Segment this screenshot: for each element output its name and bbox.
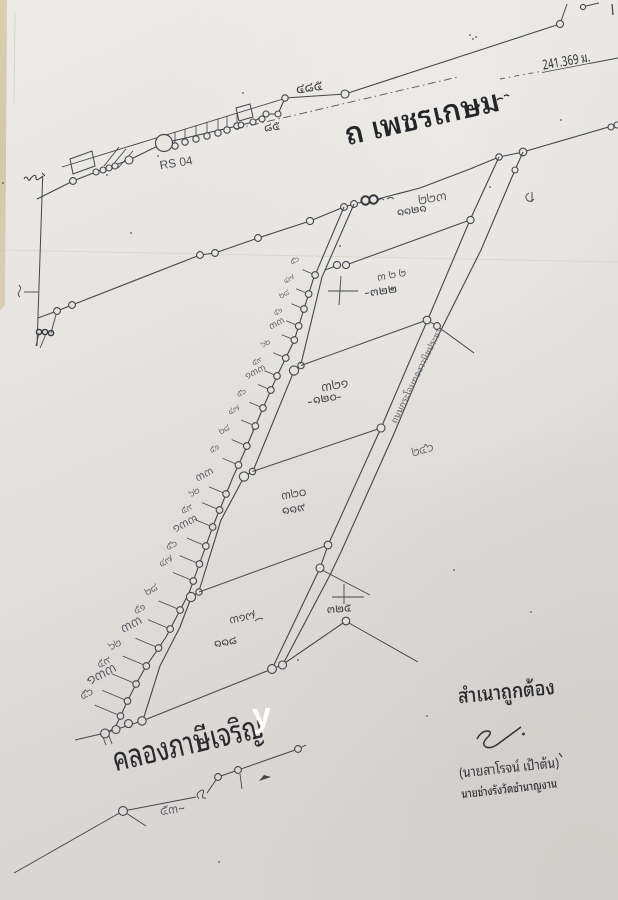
svg-text:y: y: [251, 696, 273, 735]
